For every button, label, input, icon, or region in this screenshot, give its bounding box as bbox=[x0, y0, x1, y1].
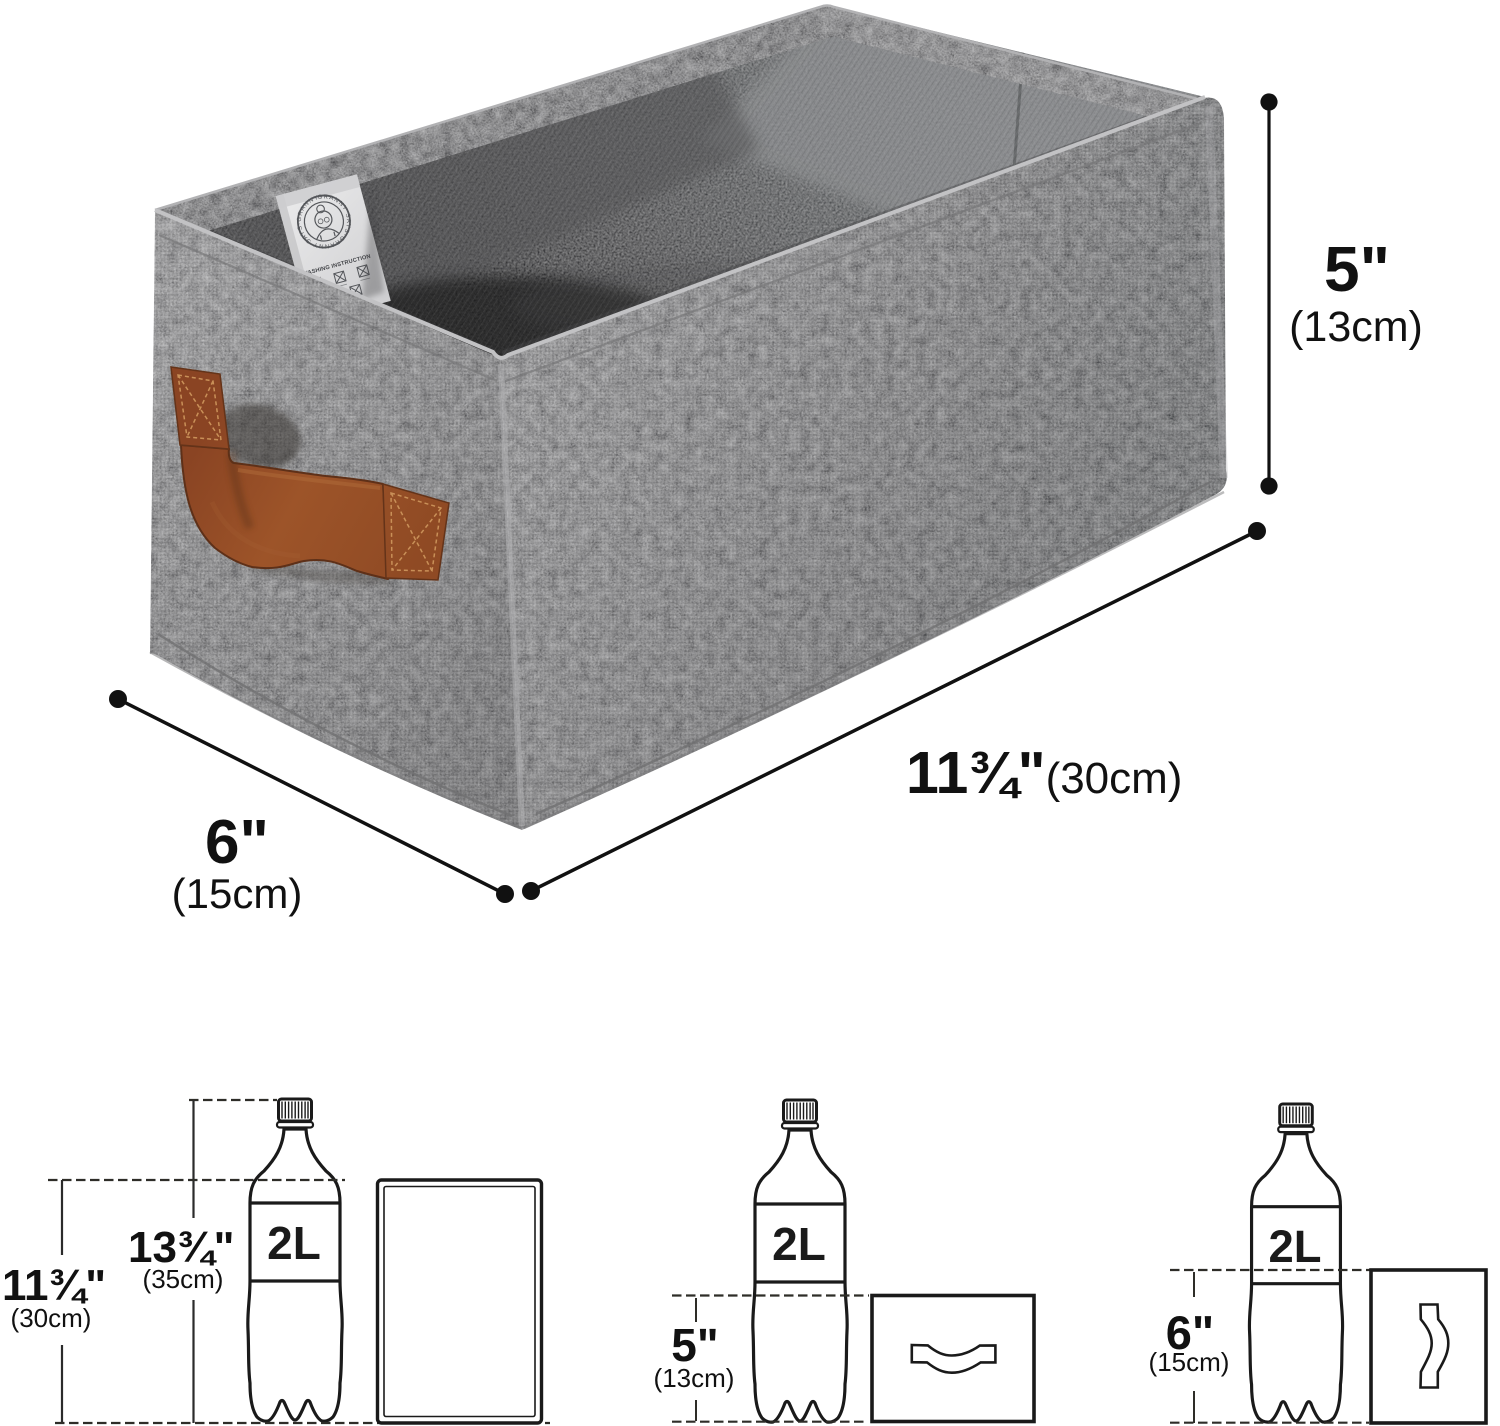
svg-text:(15cm): (15cm) bbox=[172, 870, 303, 917]
svg-text:(35cm): (35cm) bbox=[143, 1264, 224, 1294]
svg-text:5": 5" bbox=[1324, 233, 1390, 305]
svg-text:(15cm): (15cm) bbox=[1149, 1347, 1230, 1377]
svg-text:6": 6" bbox=[205, 808, 269, 877]
svg-text:(13cm): (13cm) bbox=[654, 1363, 735, 1393]
svg-text:(13cm): (13cm) bbox=[1289, 303, 1423, 351]
svg-text:(30cm): (30cm) bbox=[11, 1303, 92, 1333]
